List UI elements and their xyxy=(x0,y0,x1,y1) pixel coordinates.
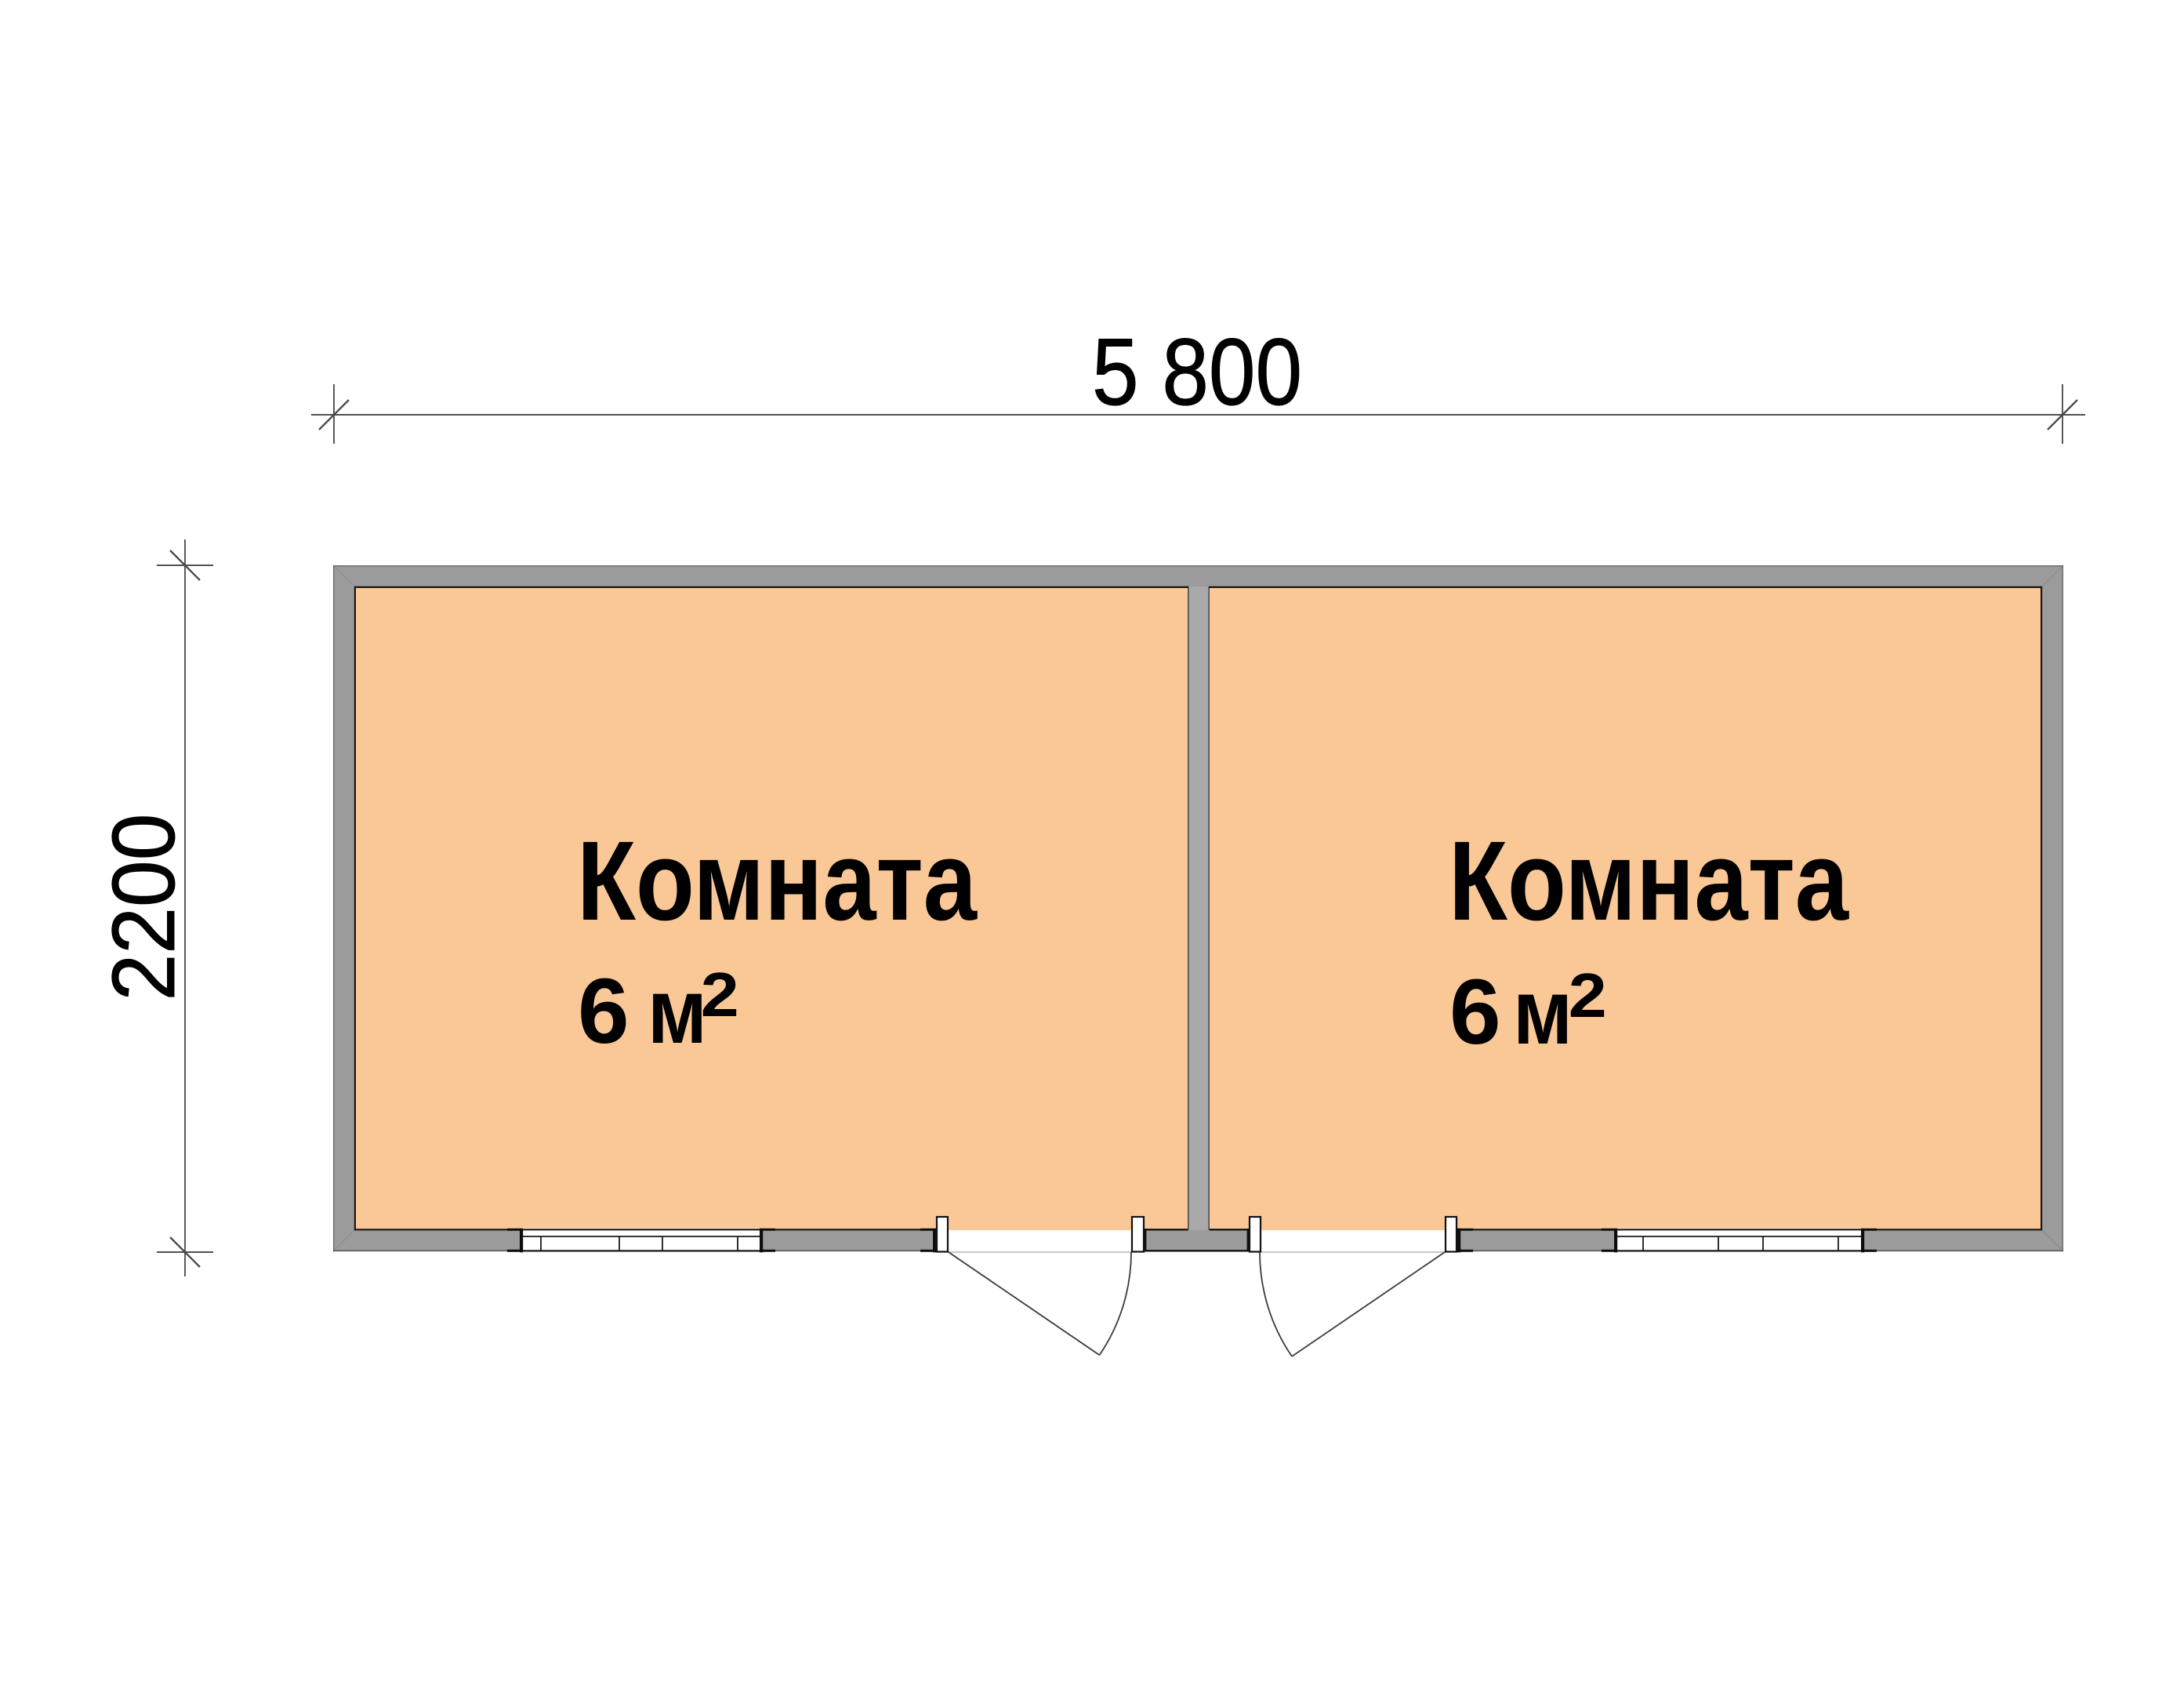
svg-text:5 800: 5 800 xyxy=(1092,318,1302,425)
svg-text:2: 2 xyxy=(701,960,739,1029)
svg-text:Комната: Комната xyxy=(577,818,978,944)
svg-text:2200: 2200 xyxy=(94,814,193,1001)
svg-text:2: 2 xyxy=(1569,960,1607,1030)
svg-text:6: 6 xyxy=(578,960,629,1063)
svg-text:Комната: Комната xyxy=(1449,818,1849,944)
svg-text:6: 6 xyxy=(1449,960,1501,1064)
svg-text:м: м xyxy=(1513,960,1573,1063)
svg-text:м: м xyxy=(648,960,707,1062)
